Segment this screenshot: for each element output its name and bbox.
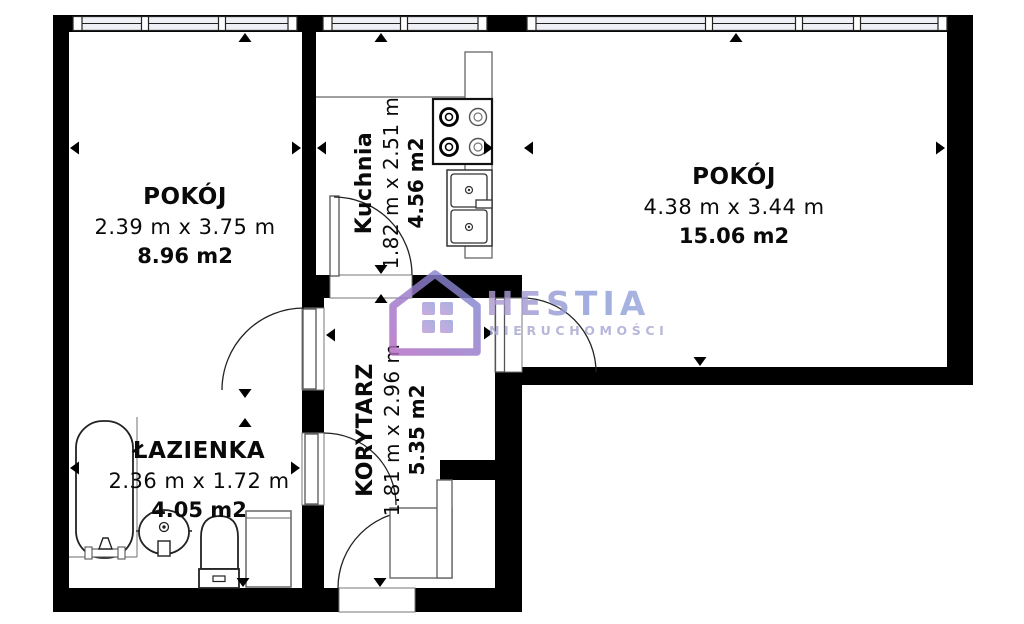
floor-plan-drawing xyxy=(0,0,1024,624)
kitchen-sink-icon xyxy=(447,170,492,246)
window-room-left xyxy=(73,17,297,31)
wall-stub-wardrobe xyxy=(440,460,495,480)
arrow-up-icon xyxy=(375,33,388,42)
arrow-down-icon xyxy=(239,389,252,398)
stove-icon xyxy=(433,99,492,164)
arrow-up-icon xyxy=(239,418,252,427)
window-kitchen xyxy=(323,17,487,31)
arrow-right-icon xyxy=(292,142,301,155)
arrow-up-icon xyxy=(730,33,743,42)
wall-right xyxy=(947,15,973,385)
arrow-right-icon xyxy=(484,327,493,340)
wall-left xyxy=(53,15,69,612)
arrow-down-icon xyxy=(375,265,388,274)
fixtures xyxy=(69,52,492,588)
bathtub-icon xyxy=(69,417,137,559)
arrow-right-icon xyxy=(291,462,300,475)
arrow-down-icon xyxy=(374,578,387,587)
door-bathroom xyxy=(305,433,396,505)
floor-plan: POKÓJ 2.39 m x 3.75 m 8.96 m2 POKÓJ 4.38… xyxy=(0,0,1024,624)
arrow-down-icon xyxy=(694,357,707,366)
washing-machine-icon xyxy=(246,511,291,587)
arrow-right-icon xyxy=(936,142,945,155)
window-room-right xyxy=(527,17,947,31)
arrow-left-icon xyxy=(326,329,335,342)
arrow-left-icon xyxy=(317,142,326,155)
arrow-left-icon xyxy=(70,142,79,155)
wardrobe-icon xyxy=(390,480,452,578)
wall-bottom xyxy=(53,588,522,612)
door-kitchen xyxy=(330,196,412,276)
wall-room-kitchen xyxy=(302,15,316,275)
door-opening-kitchen xyxy=(330,275,412,298)
washbasin-icon xyxy=(136,510,192,556)
arrow-left-icon xyxy=(524,142,533,155)
wall-room-right-bottom xyxy=(495,367,973,385)
arrow-up-icon xyxy=(239,33,252,42)
toilet-icon xyxy=(199,516,239,588)
arrow-left-icon xyxy=(70,462,79,475)
door-opening-entrance xyxy=(339,588,415,612)
